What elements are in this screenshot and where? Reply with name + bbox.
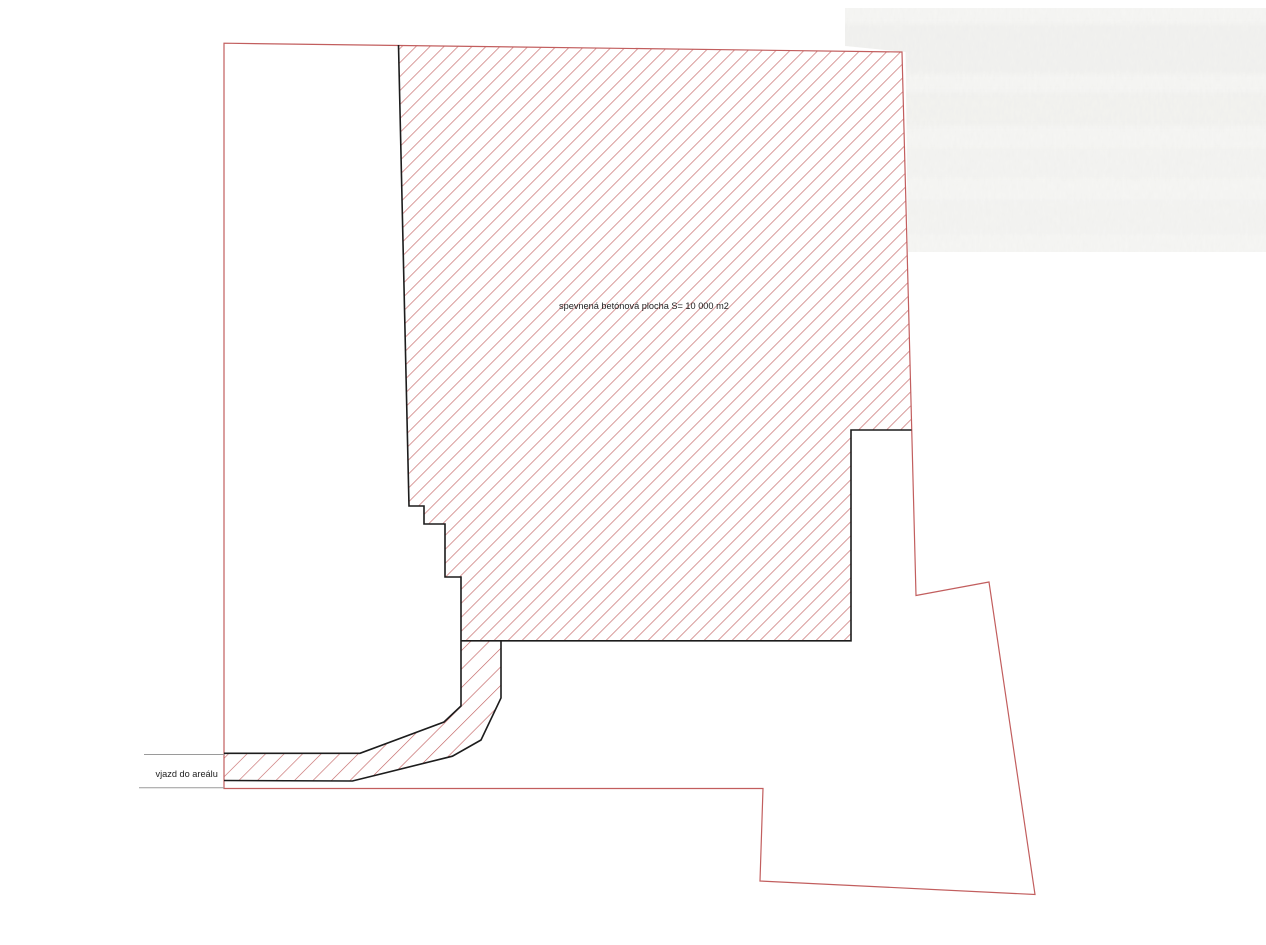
svg-text:spevnená betónová plocha S= 10: spevnená betónová plocha S= 10 000 m2 [559,301,729,311]
svg-text:vjazd do areálu: vjazd do areálu [156,769,218,779]
